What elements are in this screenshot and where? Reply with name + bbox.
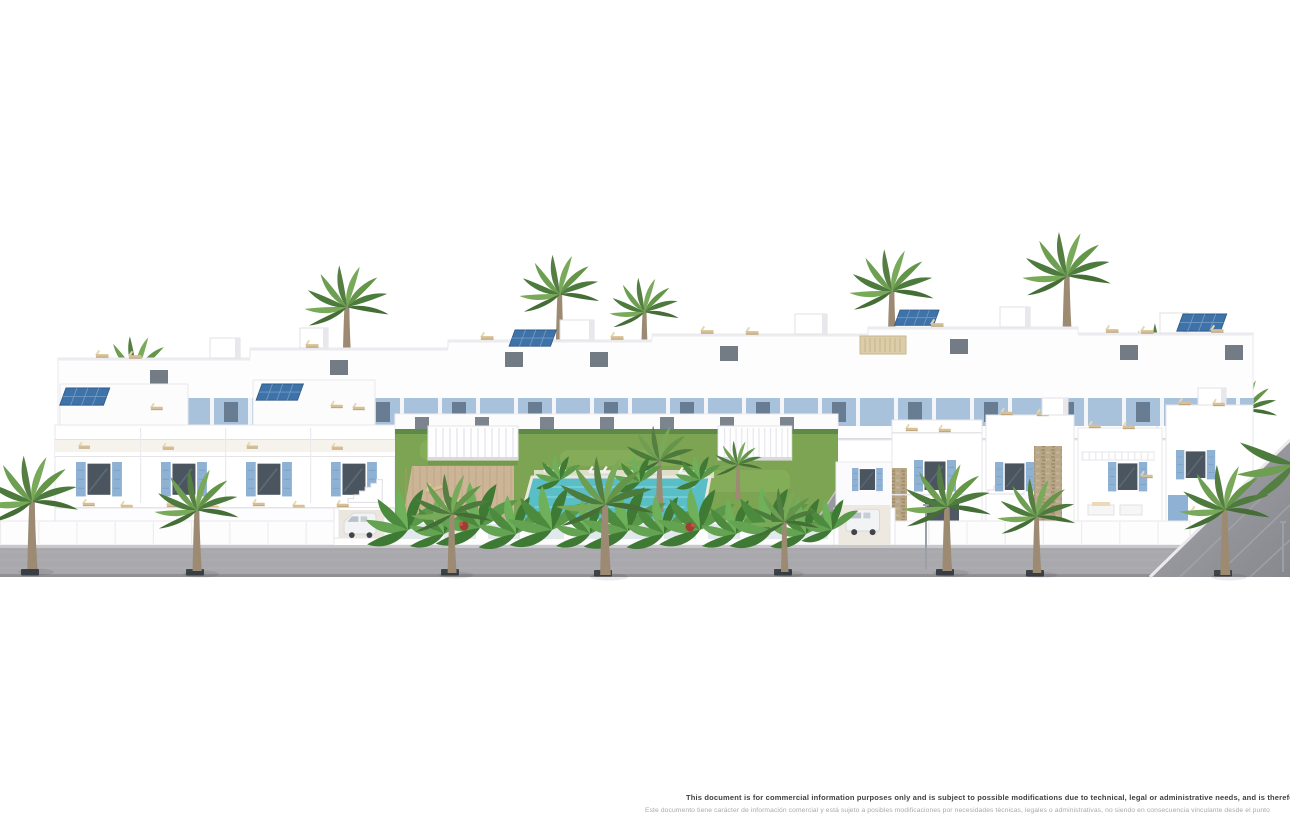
development-render [0, 0, 1290, 840]
roof-pergola [860, 336, 906, 354]
villa-c [1078, 421, 1162, 538]
render-canvas: This document is for commercial informat… [0, 0, 1290, 840]
disclaimer-english: This document is for commercial informat… [686, 794, 1290, 802]
villa-a [892, 420, 982, 538]
pergola-a [428, 426, 518, 460]
parked-van-left [344, 513, 376, 538]
disclaimer-spanish: Este documento tiene carácter de informa… [645, 807, 1270, 814]
